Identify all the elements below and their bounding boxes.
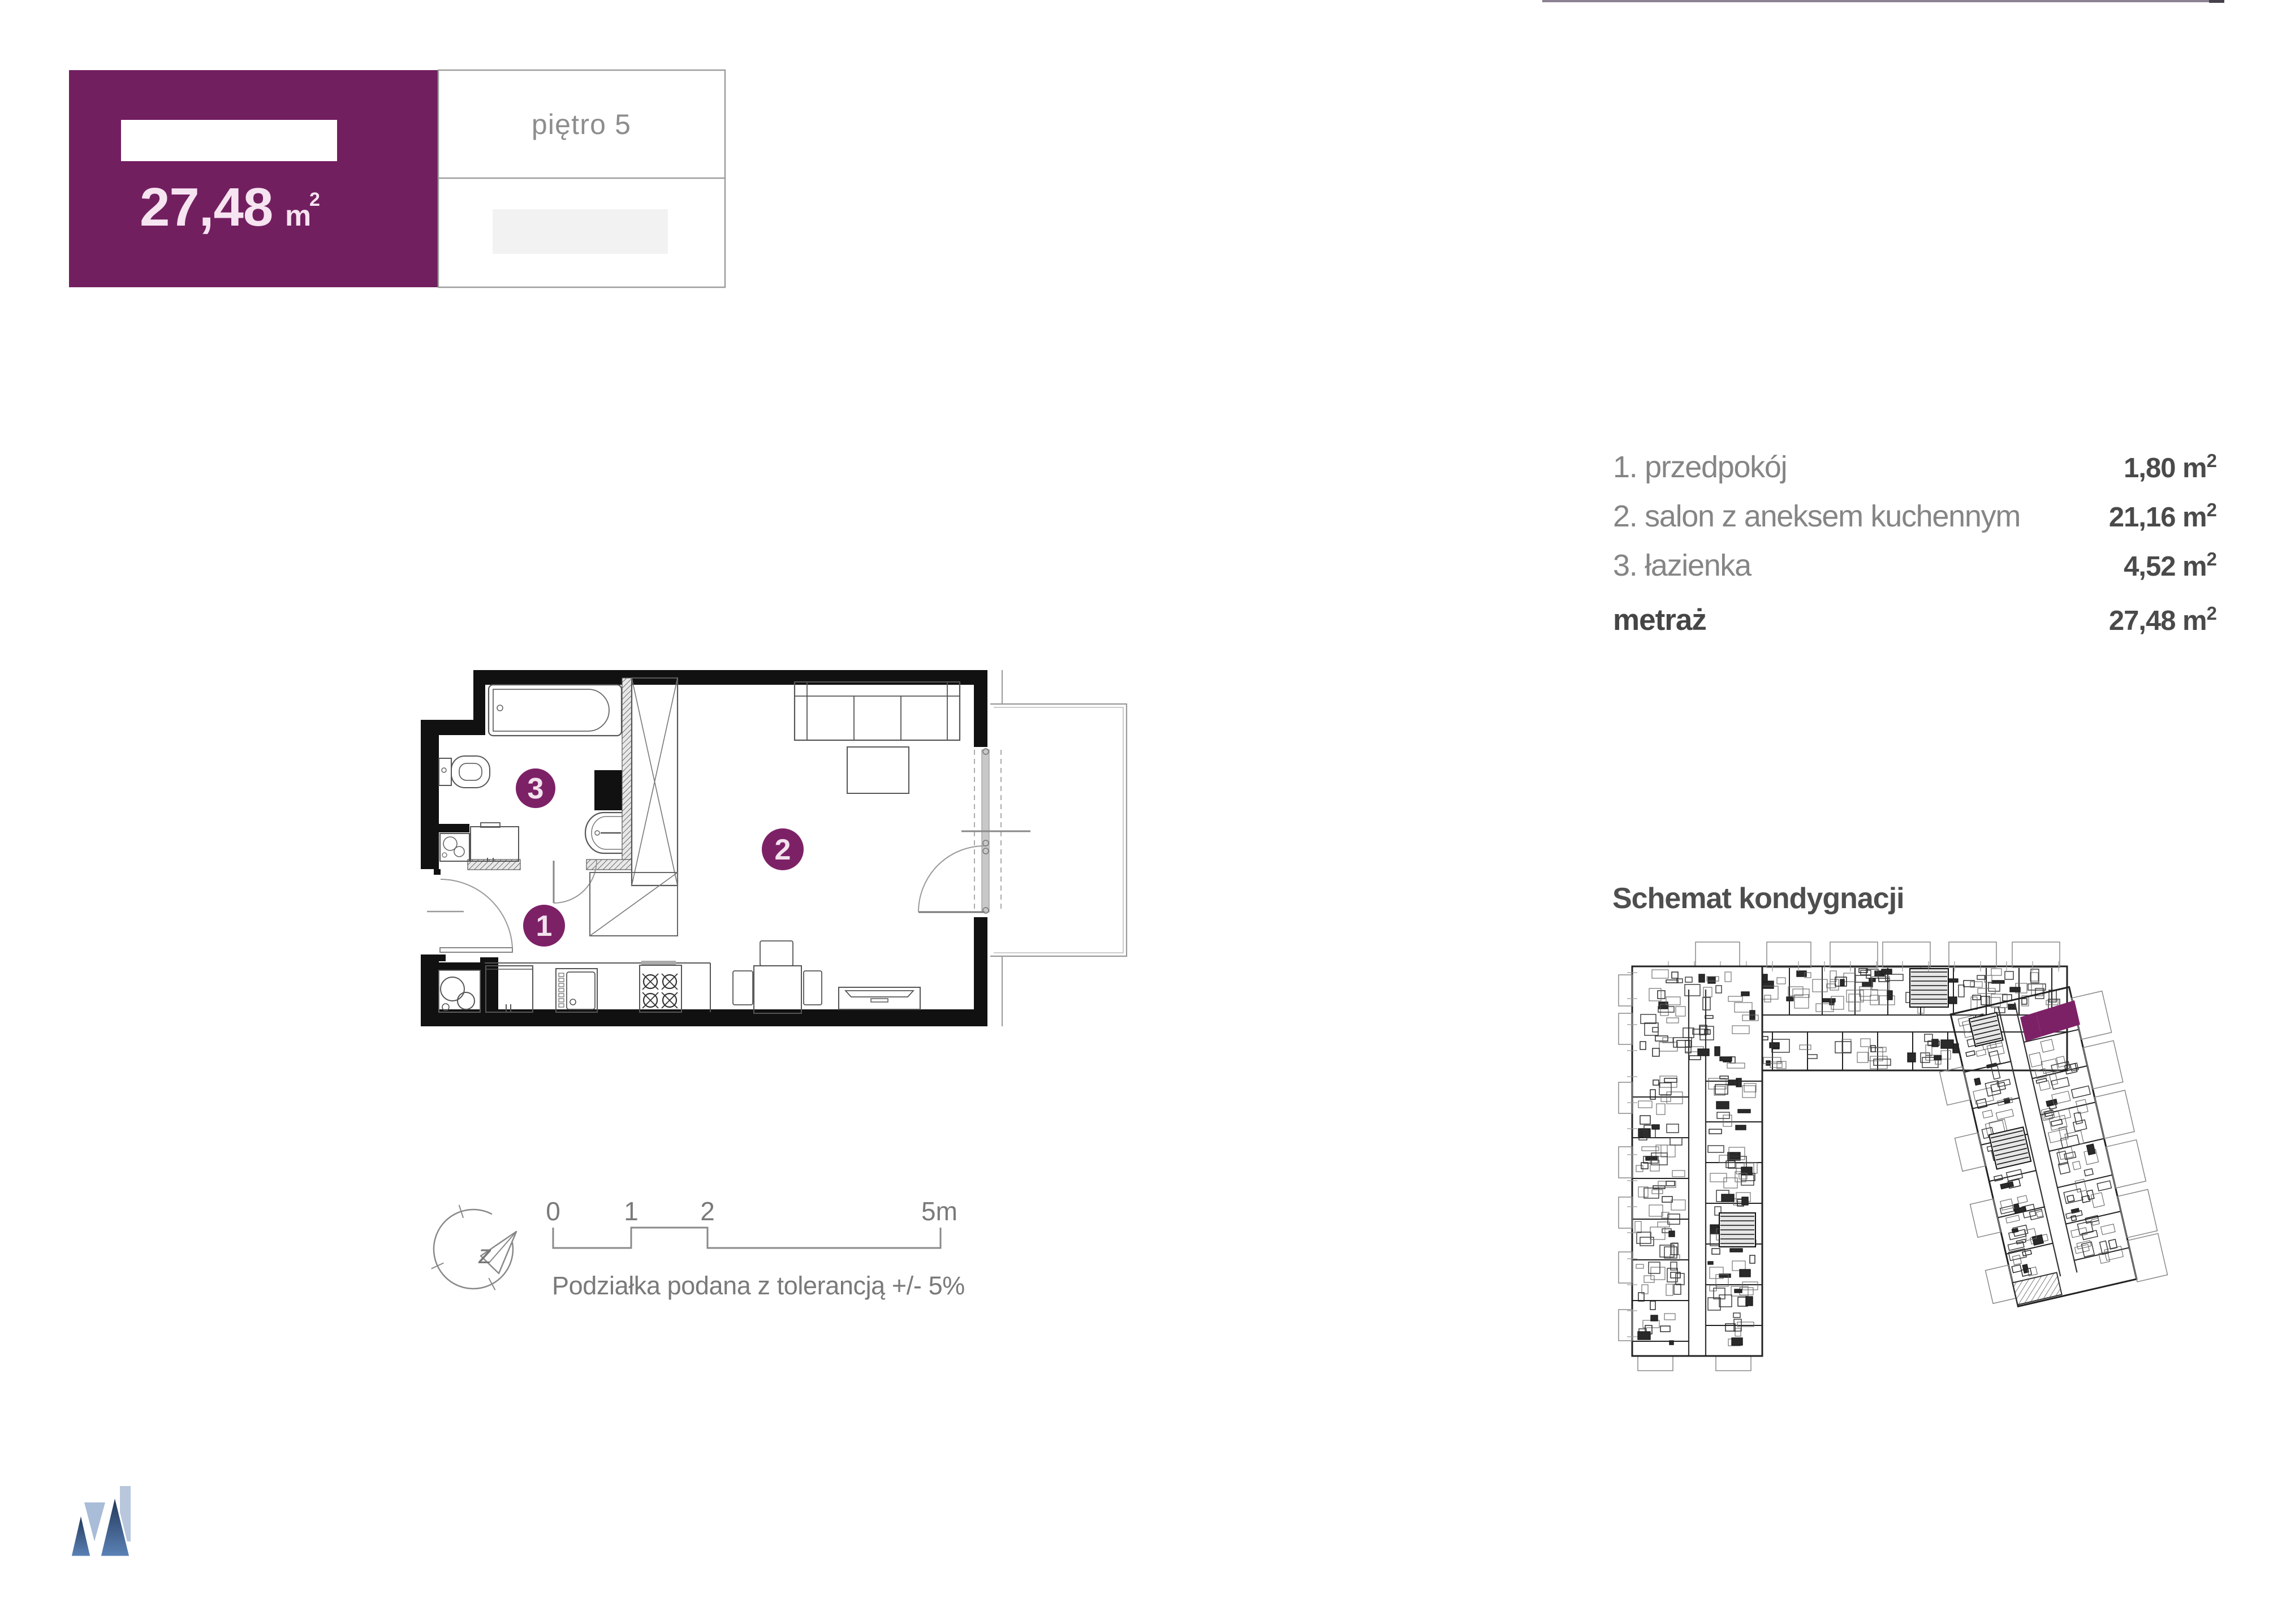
svg-text:piętro 5: piętro 5 (532, 109, 631, 140)
svg-text:1,80 m2: 1,80 m2 (2124, 450, 2217, 483)
svg-text:3. łazienka: 3. łazienka (1613, 548, 1752, 582)
svg-text:z: z (478, 1239, 491, 1269)
svg-text:27,48: 27,48 (140, 177, 273, 237)
svg-text:1: 1 (536, 910, 553, 943)
svg-text:21,16 m2: 21,16 m2 (2109, 499, 2217, 533)
svg-text:Schemat kondygnacji: Schemat kondygnacji (1612, 882, 1904, 915)
svg-text:3: 3 (528, 772, 544, 805)
svg-text:2. salon z aneksem kuchennym: 2. salon z aneksem kuchennym (1613, 499, 2020, 533)
svg-text:2: 2 (700, 1197, 715, 1226)
svg-text:4,52 m2: 4,52 m2 (2124, 548, 2217, 582)
svg-text:m: m (285, 200, 311, 232)
svg-text:Podziałka podana z tolerancją: Podziałka podana z tolerancją +/- 5% (552, 1271, 965, 1300)
svg-text:5m: 5m (921, 1197, 957, 1226)
svg-text:0: 0 (546, 1197, 560, 1226)
svg-text:1. przedpokój: 1. przedpokój (1613, 450, 1787, 484)
svg-text:2: 2 (775, 833, 791, 866)
svg-text:27,48 m2: 27,48 m2 (2109, 603, 2217, 636)
svg-text:metraż: metraż (1613, 603, 1706, 637)
svg-text:1: 1 (624, 1197, 639, 1226)
svg-text:2: 2 (309, 189, 320, 210)
